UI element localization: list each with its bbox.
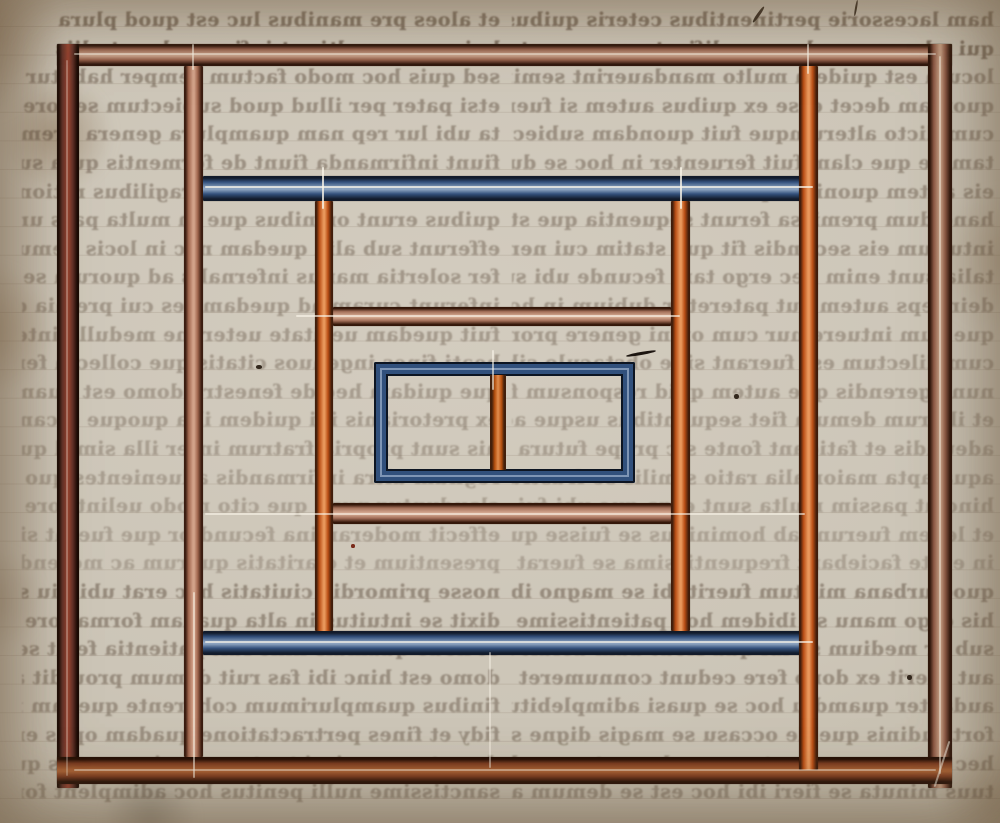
- ink-slash-1: [752, 6, 765, 23]
- ink-dot-3: [907, 675, 912, 680]
- manuscript-page: et aloes pre manibus luc est quod plurab…: [0, 0, 1000, 823]
- ink-corner-tick: [626, 349, 656, 357]
- ink-dot-2: [256, 365, 262, 369]
- ink-dot-1: [734, 394, 739, 399]
- ink-marks-layer: [0, 0, 1000, 823]
- ink-dot-red: [351, 544, 355, 548]
- ink-slash-2: [854, 0, 859, 16]
